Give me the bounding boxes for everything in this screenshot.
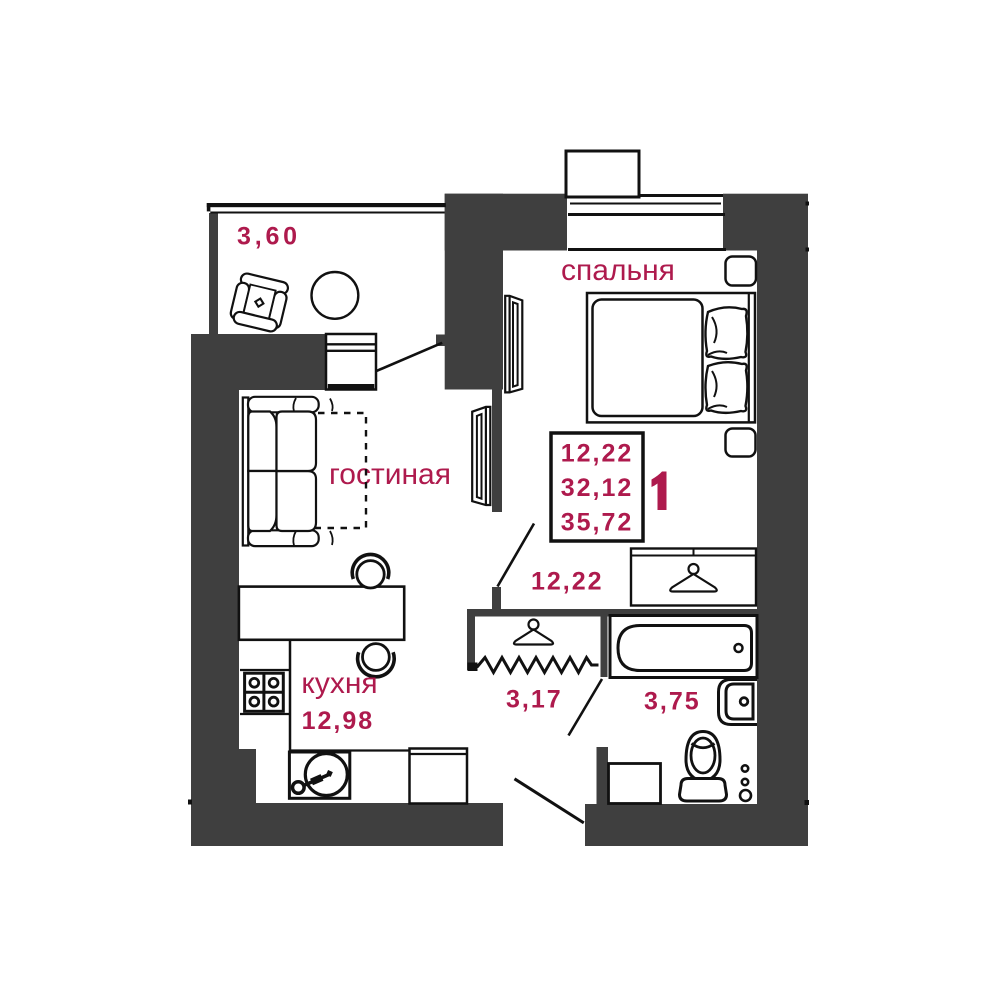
svg-text:12,98: 12,98 — [302, 707, 375, 735]
svg-text:35,72: 35,72 — [561, 509, 634, 537]
svg-text:3,60: 3,60 — [237, 223, 301, 251]
svg-text:3,75: 3,75 — [644, 688, 701, 716]
svg-text:3,17: 3,17 — [506, 686, 563, 714]
svg-text:спальня: спальня — [561, 254, 675, 287]
svg-text:32,12: 32,12 — [561, 474, 634, 502]
svg-text:кухня: кухня — [301, 667, 377, 700]
svg-text:12,22: 12,22 — [561, 440, 634, 468]
svg-text:гостиная: гостиная — [329, 458, 451, 491]
svg-text:12,22: 12,22 — [531, 568, 604, 596]
